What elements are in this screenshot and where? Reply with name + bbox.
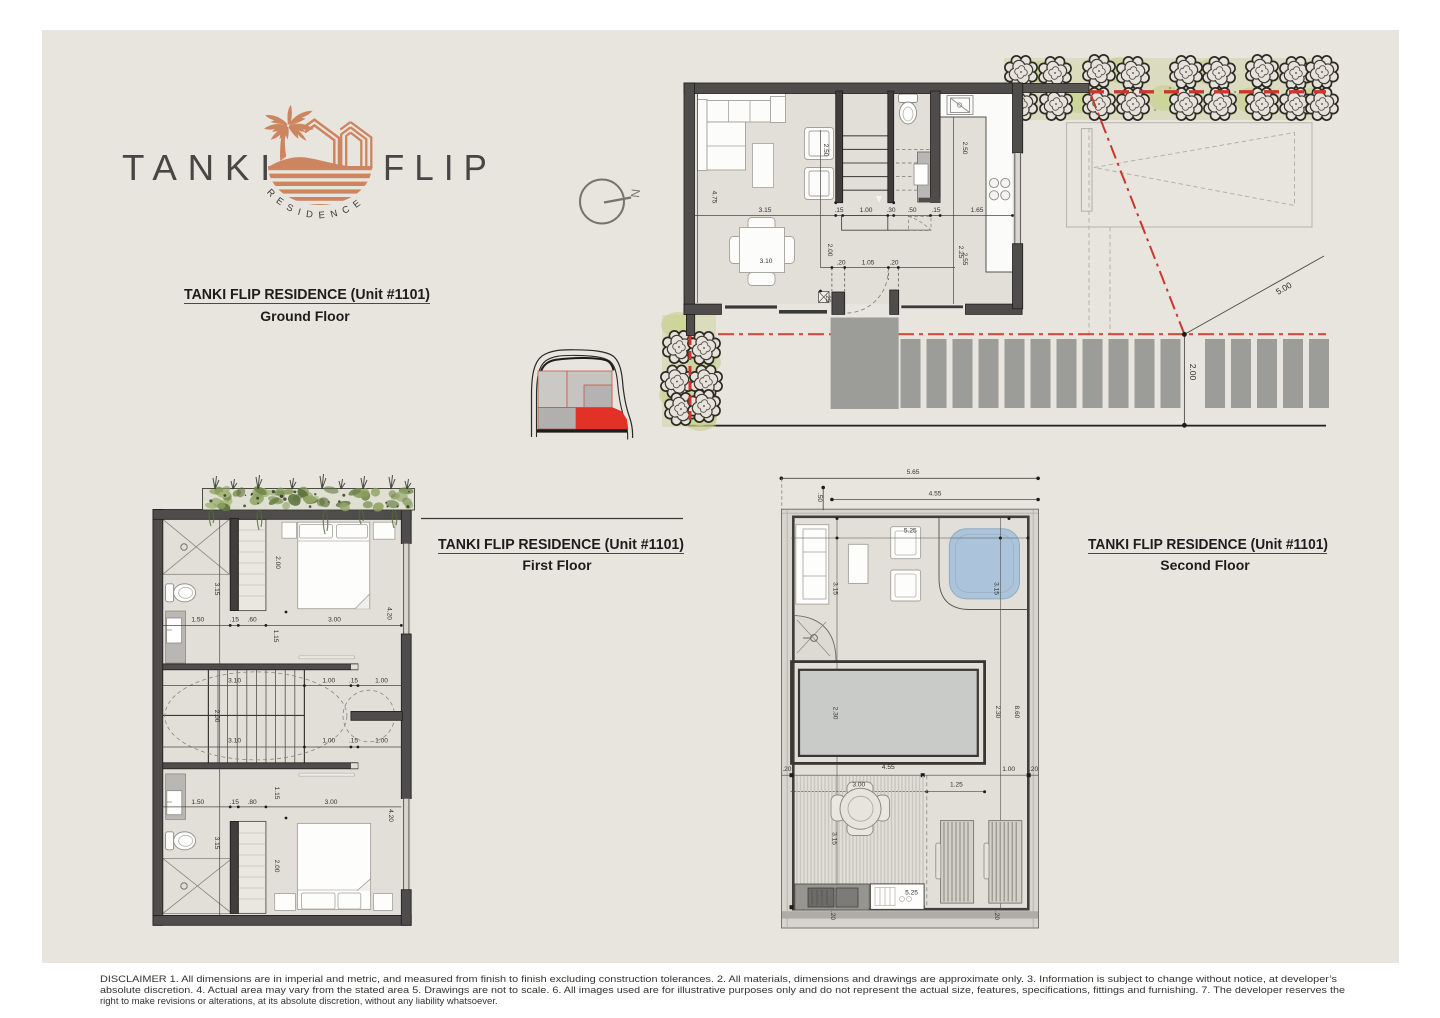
svg-text:1.50: 1.50 [191,799,204,806]
svg-text:.15: .15 [834,207,843,214]
svg-text:3.15: 3.15 [759,207,772,214]
svg-text:.20: .20 [782,766,791,773]
svg-text:3.15: 3.15 [213,837,220,850]
svg-text:.20: .20 [889,260,898,267]
svg-text:.80: .80 [248,799,257,806]
svg-text:1.00: 1.00 [1002,766,1015,773]
svg-text:.25: .25 [824,293,831,302]
svg-text:1.15: 1.15 [273,787,280,800]
svg-text:4.55: 4.55 [882,764,895,771]
svg-text:1.00: 1.00 [322,738,335,745]
svg-text:N: N [628,188,643,198]
svg-text:3.00: 3.00 [328,617,341,624]
svg-text:.20: .20 [1029,766,1038,773]
svg-text:3.15: 3.15 [213,583,220,596]
svg-text:First Floor: First Floor [522,557,592,573]
svg-text:absolute discretion. 4. Actual: absolute discretion. 4. Actual area may … [100,985,1345,996]
svg-text:1.00: 1.00 [375,678,388,685]
svg-text:right to make revisions or alt: right to make revisions or alterations, … [100,996,498,1007]
svg-text:.15: .15 [931,207,940,214]
svg-text:1.05: 1.05 [862,260,875,267]
svg-text:1.00: 1.00 [860,207,873,214]
svg-text:TANKI FLIP RESIDENCE (Unit #11: TANKI FLIP RESIDENCE (Unit #1101) [438,536,684,553]
svg-text:FLIP: FLIP [383,147,497,188]
svg-text:.50: .50 [907,207,916,214]
svg-text:.20: .20 [993,911,1000,920]
svg-text:Ground Floor: Ground Floor [260,308,350,324]
svg-text:2.00: 2.00 [213,710,220,723]
svg-text:.20: .20 [836,260,845,267]
svg-text:3.00: 3.00 [325,799,338,806]
svg-text:.20: .20 [829,911,836,920]
svg-text:3.00: 3.00 [852,782,865,789]
svg-text:.60: .60 [248,617,257,624]
svg-text:4.75: 4.75 [711,191,718,204]
svg-text:.15: .15 [349,738,358,745]
svg-text:1.65: 1.65 [971,207,984,214]
svg-text:TANKI: TANKI [122,147,281,188]
svg-text:1.50: 1.50 [191,617,204,624]
svg-text:2.00: 2.00 [273,860,280,873]
svg-text:1.00: 1.00 [375,738,388,745]
svg-text:3.10: 3.10 [228,738,241,745]
svg-text:3.15: 3.15 [832,582,839,595]
svg-text:.15: .15 [349,678,358,685]
svg-text:1.00: 1.00 [322,678,335,685]
svg-text:4.20: 4.20 [387,809,394,822]
svg-text:5.25: 5.25 [905,890,918,897]
svg-text:4.20: 4.20 [386,607,393,620]
svg-text:.50: .50 [816,493,823,502]
svg-text:2.30: 2.30 [832,707,839,720]
svg-text:2.50: 2.50 [961,142,968,155]
svg-text:3.10: 3.10 [760,258,773,265]
svg-text:1.25: 1.25 [950,782,963,789]
svg-text:3.15: 3.15 [993,582,1000,595]
svg-text:4.55: 4.55 [929,491,942,498]
svg-text:1.15: 1.15 [272,630,279,643]
svg-text:TANKI FLIP RESIDENCE (Unit #11: TANKI FLIP RESIDENCE (Unit #1101) [1088,536,1328,553]
svg-text:2.00: 2.00 [826,244,833,257]
svg-text:3.10: 3.10 [228,678,241,685]
svg-text:5.65: 5.65 [907,469,920,476]
svg-text:Second Floor: Second Floor [1160,557,1250,573]
svg-text:2.00: 2.00 [274,556,281,569]
svg-text:.30: .30 [886,207,895,214]
svg-text:3.15: 3.15 [831,832,838,845]
svg-text:2.55: 2.55 [961,253,968,266]
svg-text:2.50: 2.50 [822,144,829,157]
svg-text:.15: .15 [230,799,239,806]
svg-text:2.00: 2.00 [1188,364,1198,381]
svg-text:2.30: 2.30 [994,705,1001,718]
svg-text:DISCLAIMER 1. All dimensions a: DISCLAIMER 1. All dimensions are in impe… [100,974,1337,985]
svg-text:8.60: 8.60 [1013,705,1020,718]
svg-text:TANKI FLIP RESIDENCE (Unit #11: TANKI FLIP RESIDENCE (Unit #1101) [184,286,430,303]
svg-text:5.25: 5.25 [904,528,917,535]
svg-text:.15: .15 [230,617,239,624]
